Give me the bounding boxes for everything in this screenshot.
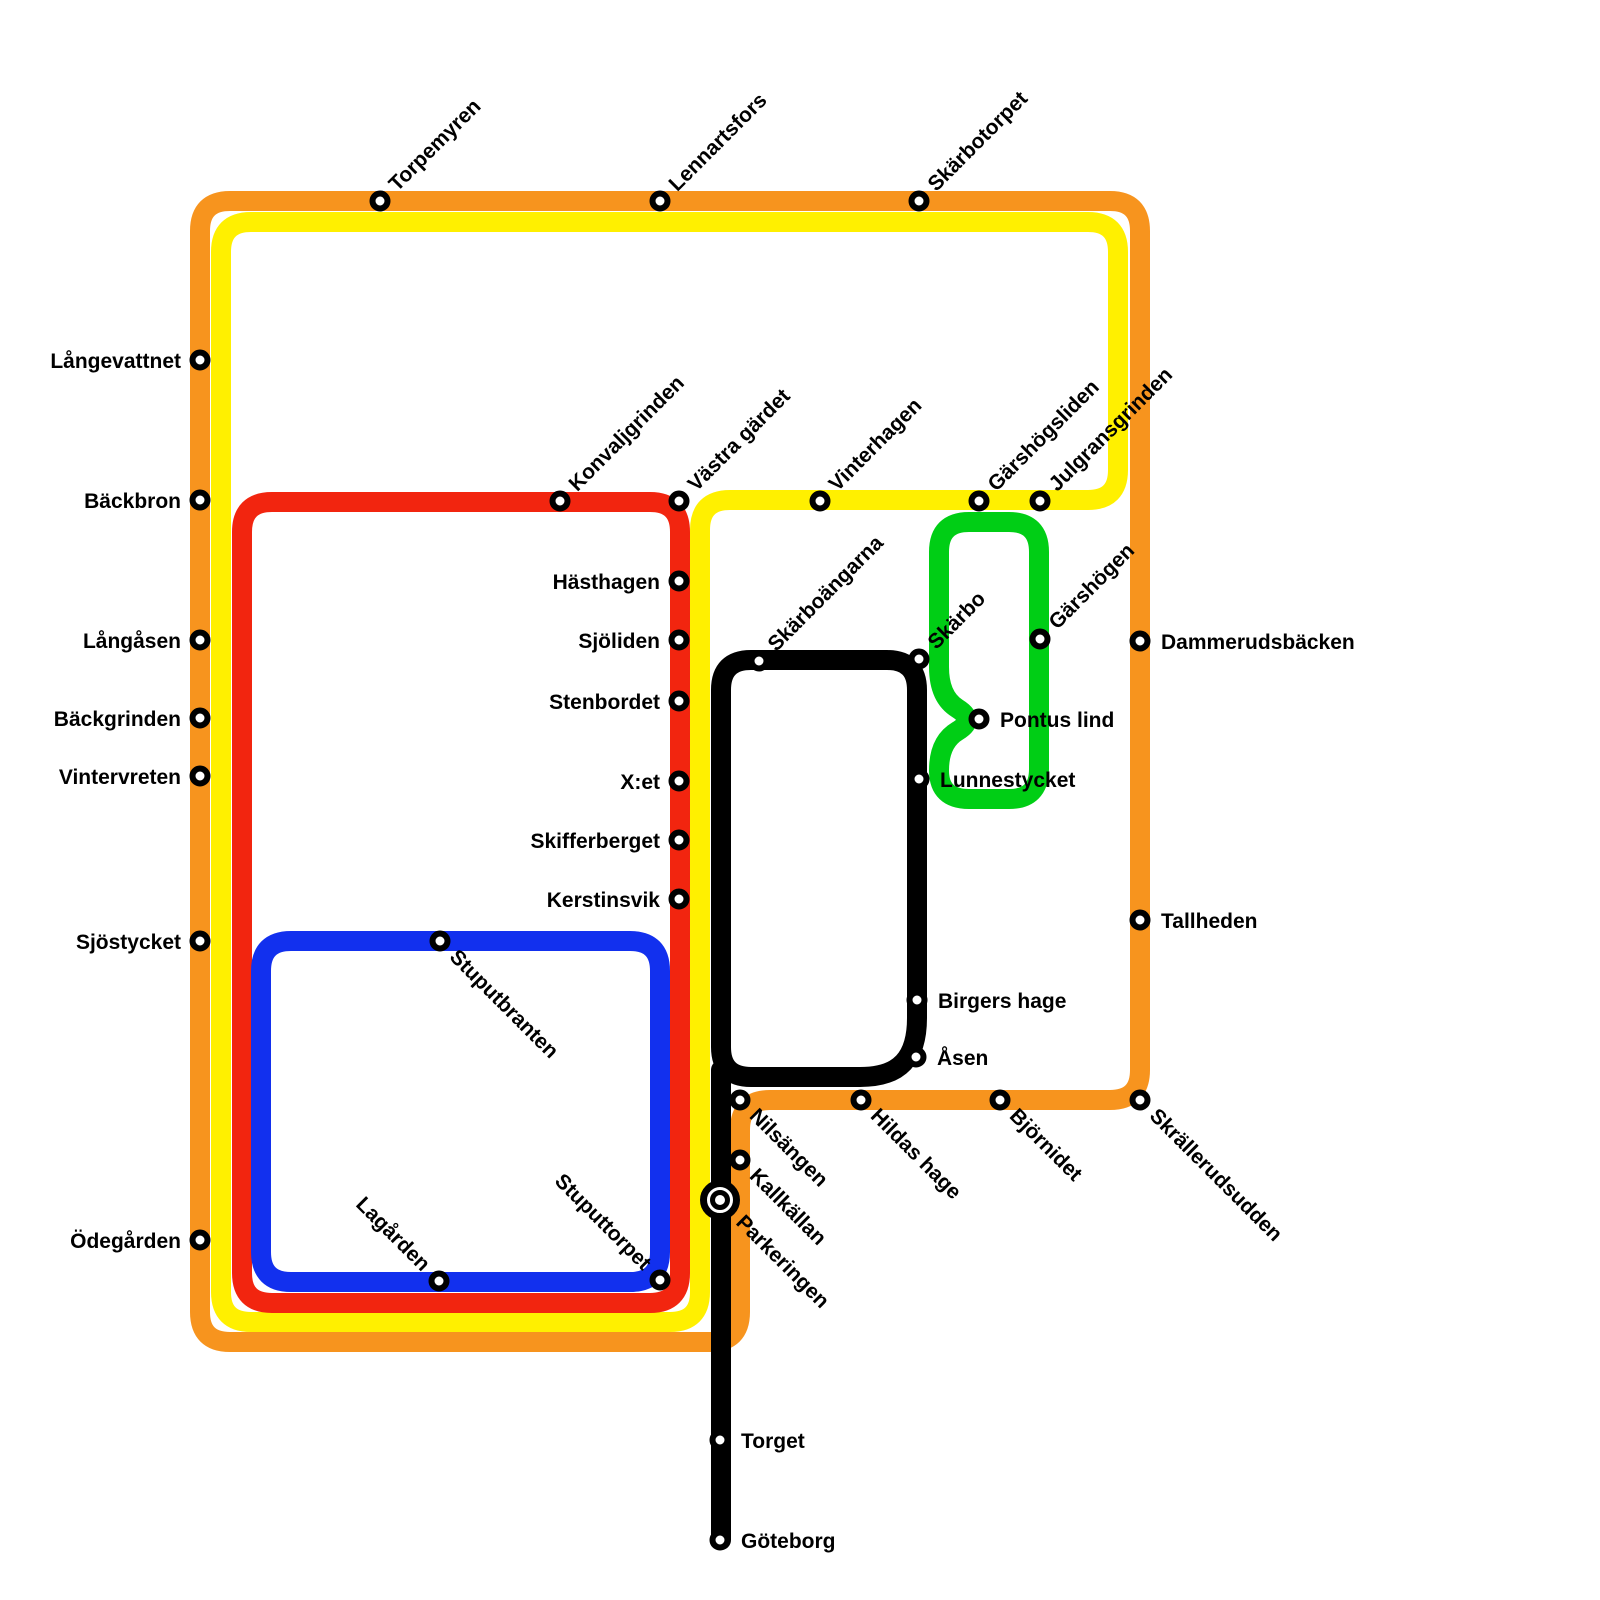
- station-label-skarbotorpet: Skärbotorpet: [924, 87, 1033, 196]
- station-odegarden: Ödegården: [70, 1230, 207, 1253]
- station-marker: [972, 712, 987, 727]
- station-marker: [672, 633, 687, 648]
- station-marker: [672, 774, 687, 789]
- interchange-marker-inner: [713, 1193, 728, 1208]
- station-label-skarboangarna: Skärboängarna: [764, 531, 889, 656]
- station-marker: [1133, 1093, 1148, 1108]
- transit-map-canvas: LångevattnetBäckbronLångåsenBäckgrindenV…: [0, 0, 1600, 1600]
- station-label-x-et: X:et: [620, 771, 660, 794]
- station-label-dammerudsbacken: Dammerudsbäcken: [1161, 631, 1355, 654]
- station-marker: [672, 694, 687, 709]
- station-marker: [733, 1153, 748, 1168]
- station-marker: [653, 194, 668, 209]
- station-marker: [553, 494, 568, 509]
- station-backbron: Bäckbron: [84, 490, 207, 513]
- station-marker: [672, 494, 687, 509]
- station-marker: [672, 574, 687, 589]
- station-label-kerstinsvik: Kerstinsvik: [547, 889, 661, 912]
- station-skrallerudsudden: Skrällerudsudden: [1133, 1093, 1287, 1247]
- station-marker: [912, 652, 927, 667]
- station-label-pontus-lind: Pontus lind: [1000, 709, 1114, 732]
- station-label-odegarden: Ödegården: [70, 1230, 181, 1253]
- station-skarbo: Skärbo: [912, 587, 991, 666]
- station-marker: [193, 493, 208, 508]
- station-label-sjostycket: Sjöstycket: [76, 931, 181, 954]
- station-label-backbron: Bäckbron: [84, 490, 181, 513]
- station-marker: [733, 1093, 748, 1108]
- station-sjostycket: Sjöstycket: [76, 931, 208, 954]
- station-birgers-hage: Birgers hage: [910, 990, 1067, 1013]
- station-marker: [672, 892, 687, 907]
- station-marker: [713, 1433, 728, 1448]
- station-marker: [433, 934, 448, 949]
- station-marker: [912, 772, 927, 787]
- station-kerstinsvik: Kerstinsvik: [547, 889, 687, 912]
- station-label-langevattnet: Långevattnet: [50, 350, 181, 373]
- station-marker: [193, 934, 208, 949]
- station-label-backgrinden: Bäckgrinden: [54, 708, 181, 731]
- station-label-sjoliden: Sjöliden: [578, 630, 660, 653]
- station-skarboangarna: Skärboängarna: [752, 531, 889, 668]
- station-marker: [972, 494, 987, 509]
- station-label-stenbordet: Stenbordet: [549, 691, 660, 714]
- station-skarbotorpet: Skärbotorpet: [912, 87, 1033, 208]
- station-marker: [909, 1050, 924, 1065]
- station-label-bjornidet: Björnidet: [1005, 1104, 1086, 1185]
- station-label-skifferberget: Skifferberget: [530, 830, 660, 853]
- station-label-stuputbranten: Stuputbranten: [445, 945, 563, 1063]
- station-marker: [854, 1093, 869, 1108]
- station-label-langasen: Långåsen: [83, 630, 181, 653]
- station-marker: [653, 1273, 668, 1288]
- station-marker: [713, 1533, 728, 1548]
- transit-map: LångevattnetBäckbronLångåsenBäckgrindenV…: [0, 0, 1600, 1600]
- station-marker: [193, 633, 208, 648]
- station-label-torget: Torget: [741, 1430, 805, 1453]
- station-hasthagen: Hästhagen: [553, 571, 687, 594]
- station-lennartsfors: Lennartsfors: [653, 89, 772, 209]
- station-label-lennartsfors: Lennartsfors: [665, 89, 772, 196]
- station-langevattnet: Långevattnet: [50, 350, 207, 373]
- station-label-hildas-hage: Hildas hage: [866, 1104, 966, 1204]
- station-langasen: Långåsen: [83, 630, 208, 653]
- station-skifferberget: Skifferberget: [530, 830, 686, 853]
- station-label-torpemyren: Torpemyren: [385, 95, 486, 196]
- station-stuputbranten: Stuputbranten: [433, 934, 563, 1064]
- station-label-konvaljgrinden: Konvaljgrinden: [565, 371, 689, 495]
- station-stenbordet: Stenbordet: [549, 691, 686, 714]
- station-label-hasthagen: Hästhagen: [553, 571, 660, 594]
- black-loop: [721, 660, 917, 1077]
- station-marker: [1133, 913, 1148, 928]
- station-label-garshogen: Gärshögen: [1045, 539, 1140, 634]
- green-line: [939, 522, 1039, 799]
- station-marker: [910, 993, 925, 1008]
- station-asen: Åsen: [909, 1046, 989, 1070]
- station-vintervreten: Vintervreten: [59, 766, 208, 789]
- station-marker: [993, 1093, 1008, 1108]
- station-marker: [432, 1274, 447, 1289]
- station-label-asen: Åsen: [937, 1046, 988, 1070]
- station-marker: [752, 654, 767, 669]
- station-marker: [813, 494, 828, 509]
- station-marker: [672, 833, 687, 848]
- station-marker: [1133, 634, 1148, 649]
- station-pontus-lind: Pontus lind: [972, 709, 1115, 732]
- station-label-lunnestycket: Lunnestycket: [940, 769, 1075, 792]
- station-tallheden: Tallheden: [1133, 910, 1258, 933]
- station-marker: [193, 769, 208, 784]
- station-label-stuputtorpet: Stuputtorpet: [550, 1169, 655, 1274]
- station-marker: [193, 711, 208, 726]
- station-marker: [373, 194, 388, 209]
- station-label-vastra-gardet: Västra gärdet: [684, 385, 795, 496]
- station-label-skrallerudsudden: Skrällerudsudden: [1145, 1104, 1287, 1246]
- station-marker: [193, 353, 208, 368]
- station-backgrinden: Bäckgrinden: [54, 708, 208, 731]
- station-x-et: X:et: [620, 771, 686, 794]
- station-marker: [1033, 632, 1048, 647]
- station-label-vinterhagen: Vinterhagen: [825, 394, 927, 496]
- station-label-vintervreten: Vintervreten: [59, 766, 181, 789]
- station-dammerudsbacken: Dammerudsbäcken: [1133, 631, 1355, 654]
- station-konvaljgrinden: Konvaljgrinden: [553, 371, 689, 508]
- station-marker: [912, 194, 927, 209]
- station-marker: [193, 1233, 208, 1248]
- station-label-tallheden: Tallheden: [1161, 910, 1257, 933]
- station-label-birgers-hage: Birgers hage: [938, 990, 1066, 1013]
- station-vastra-gardet: Västra gärdet: [672, 385, 795, 509]
- station-label-garshogsliden: Gärshögsliden: [984, 376, 1104, 496]
- station-label-lagarden: Lagården: [351, 1193, 434, 1276]
- station-marker: [1033, 494, 1048, 509]
- station-label-goteborg: Göteborg: [741, 1530, 836, 1553]
